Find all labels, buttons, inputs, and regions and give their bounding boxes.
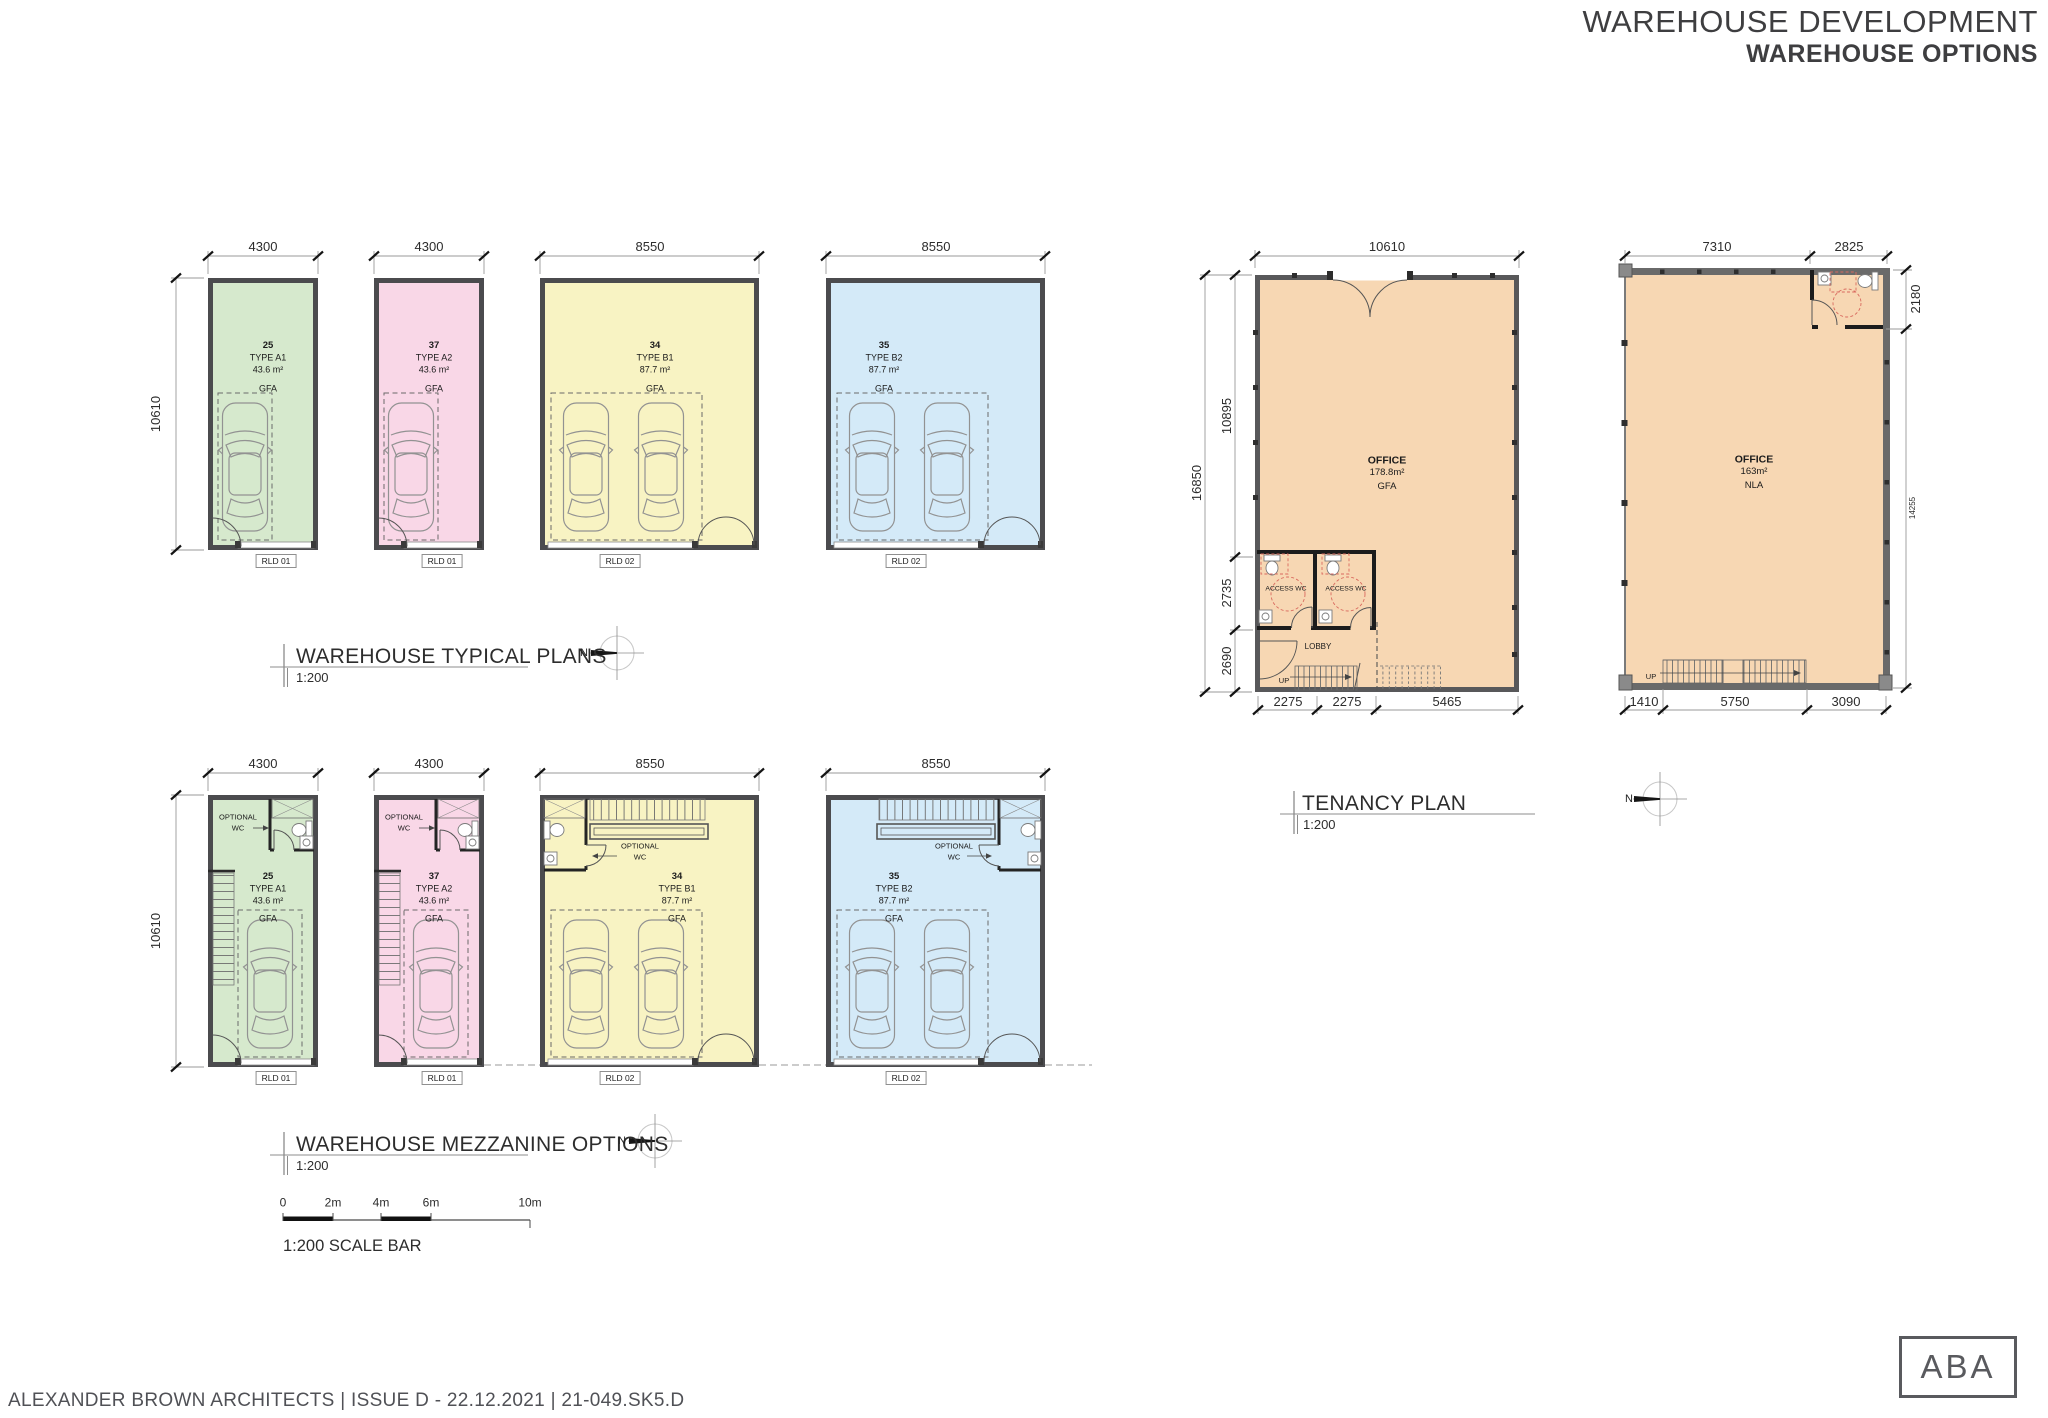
mezzanine-options-title: WAREHOUSE MEZZANINE OPTIONS bbox=[296, 1133, 669, 1157]
t1-seg1-dim: 10895 bbox=[1220, 398, 1234, 434]
t2-bottom-dim-3: 3090 bbox=[1832, 695, 1861, 709]
t1-up-label: UP bbox=[1279, 677, 1289, 685]
scalebar-label: 1:200 SCALE BAR bbox=[283, 1237, 422, 1256]
unit-b2-area-mezz: 87.7 m² bbox=[879, 896, 910, 905]
unit-a1-metric-mezz: GFA bbox=[259, 914, 277, 923]
t2-right-dim-2: 14255 bbox=[1909, 497, 1917, 519]
unit-a1-metric: GFA bbox=[259, 384, 277, 393]
unit-b2-type-mezz: TYPE B2 bbox=[875, 884, 912, 893]
t1-total-dim: 16850 bbox=[1190, 465, 1204, 501]
scalebar-0: 0 bbox=[280, 1197, 287, 1210]
rld-tag-a2-mezz: RLD 01 bbox=[422, 1071, 463, 1085]
unit-b1-area-mezz: 87.7 m² bbox=[662, 896, 693, 905]
unit-b1-typical-plan bbox=[543, 281, 758, 549]
unit-a2-typical-plan bbox=[377, 281, 483, 549]
dim-a1-height: 10610 bbox=[149, 396, 163, 432]
unit-b1-mezzanine-plan bbox=[543, 798, 758, 1066]
dim-b1-width-mezz: 8550 bbox=[636, 757, 665, 771]
optional-wc-b2: OPTIONAL WC bbox=[935, 842, 973, 863]
dim-a2-width-mezz: 4300 bbox=[415, 757, 444, 771]
unit-b1-area: 87.7 m² bbox=[640, 365, 671, 374]
rld-tag-b2-mezz: RLD 02 bbox=[886, 1071, 927, 1085]
unit-b1-number-mezz: 34 bbox=[672, 872, 683, 882]
unit-b2-typical-plan bbox=[829, 281, 1044, 549]
unit-b2-metric-mezz: GFA bbox=[885, 914, 903, 923]
unit-b2-metric: GFA bbox=[875, 384, 893, 393]
t1-bottom-dim-3: 5465 bbox=[1433, 695, 1462, 709]
north-arrow-tenancy bbox=[1633, 772, 1687, 826]
optional-wc-a1: OPTIONAL WC bbox=[219, 813, 257, 834]
unit-a1-mezzanine-plan bbox=[208, 798, 316, 1066]
dim-b1-width: 8550 bbox=[636, 240, 665, 254]
unit-a2-number: 37 bbox=[429, 341, 440, 351]
dim-a1-width: 4300 bbox=[249, 240, 278, 254]
unit-b2-mezzanine-plan bbox=[829, 798, 1044, 1066]
unit-a2-type-mezz: TYPE A2 bbox=[416, 884, 453, 893]
t1-access-wc-1: ACCESS WC bbox=[1265, 585, 1306, 592]
dim-a1-height-mezz: 10610 bbox=[149, 913, 163, 949]
unit-a2-metric-mezz: GFA bbox=[425, 914, 443, 923]
unit-a2-number-mezz: 37 bbox=[429, 872, 440, 882]
t2-right-dim-1: 2180 bbox=[1909, 285, 1923, 314]
unit-b2-number: 35 bbox=[879, 341, 890, 351]
unit-b1-number: 34 bbox=[650, 341, 661, 351]
footer-text: ALEXANDER BROWN ARCHITECTS | ISSUE D - 2… bbox=[8, 1390, 684, 1412]
t1-seg3-dim: 2690 bbox=[1220, 647, 1234, 676]
unit-a2-mezzanine-plan bbox=[374, 798, 482, 1066]
t2-top-dim-1: 7310 bbox=[1703, 240, 1732, 254]
t1-office-metric: GFA bbox=[1377, 482, 1396, 492]
unit-a2-metric: GFA bbox=[425, 384, 443, 393]
t1-office-area: 178.8m² bbox=[1370, 468, 1405, 478]
unit-a1-area: 43.6 m² bbox=[253, 365, 284, 374]
t2-office-metric: NLA bbox=[1745, 481, 1763, 491]
t1-bottom-dim-2: 2275 bbox=[1333, 695, 1362, 709]
scalebar-2m: 2m bbox=[325, 1197, 342, 1210]
t1-office-label: OFFICE bbox=[1368, 455, 1407, 466]
dim-b2-width: 8550 bbox=[922, 240, 951, 254]
unit-a1-type: TYPE A1 bbox=[250, 353, 287, 362]
north-label-typical: N bbox=[580, 648, 588, 660]
rld-tag-b2-typical: RLD 02 bbox=[886, 554, 927, 568]
unit-a2-type: TYPE A2 bbox=[416, 353, 453, 362]
drawing-sheet: WAREHOUSE DEVELOPMENT WAREHOUSE OPTIONS … bbox=[0, 0, 2048, 1418]
t1-lobby-label: LOBBY bbox=[1305, 643, 1332, 651]
north-label-mezzanine: N bbox=[618, 1136, 626, 1148]
unit-b1-type: TYPE B1 bbox=[636, 353, 673, 362]
project-title: WAREHOUSE DEVELOPMENT bbox=[1583, 4, 2038, 40]
mezzanine-options-scale: 1:200 bbox=[296, 1158, 329, 1173]
t1-access-wc-2: ACCESS WC bbox=[1325, 585, 1366, 592]
t2-bottom-dim-2: 5750 bbox=[1721, 695, 1750, 709]
rld-tag-a2-typical: RLD 01 bbox=[422, 554, 463, 568]
unit-a1-type-mezz: TYPE A1 bbox=[250, 884, 287, 893]
scalebar-10m: 10m bbox=[518, 1197, 541, 1210]
rld-tag-a1-mezz: RLD 01 bbox=[256, 1071, 297, 1085]
dim-a2-width: 4300 bbox=[415, 240, 444, 254]
typical-plans-title: WAREHOUSE TYPICAL PLANS bbox=[296, 645, 607, 669]
unit-b2-type: TYPE B2 bbox=[865, 353, 902, 362]
dim-a1-width-mezz: 4300 bbox=[249, 757, 278, 771]
t2-office-label: OFFICE bbox=[1735, 454, 1774, 465]
t1-bottom-dim-1: 2275 bbox=[1274, 695, 1303, 709]
unit-a1-area-mezz: 43.6 m² bbox=[253, 896, 284, 905]
unit-b1-metric: GFA bbox=[646, 384, 664, 393]
aba-logo: ABA bbox=[1899, 1336, 2017, 1398]
unit-b2-number-mezz: 35 bbox=[889, 872, 900, 882]
typical-plans-scale: 1:200 bbox=[296, 670, 329, 685]
t2-up-label: UP bbox=[1646, 673, 1656, 681]
scale-bar bbox=[283, 1213, 530, 1228]
optional-wc-b1: OPTIONAL WC bbox=[621, 842, 659, 863]
rld-tag-b1-mezz: RLD 02 bbox=[600, 1071, 641, 1085]
sheet-title-block: WAREHOUSE DEVELOPMENT WAREHOUSE OPTIONS bbox=[1583, 4, 2038, 69]
t1-seg2-dim: 2735 bbox=[1220, 579, 1234, 608]
t1-top-dim: 10610 bbox=[1369, 240, 1405, 254]
scalebar-4m: 4m bbox=[373, 1197, 390, 1210]
unit-b2-area: 87.7 m² bbox=[869, 365, 900, 374]
unit-a2-area-mezz: 43.6 m² bbox=[419, 896, 450, 905]
rld-tag-b1-typical: RLD 02 bbox=[600, 554, 641, 568]
t2-office-area: 163m² bbox=[1741, 467, 1768, 477]
t2-bottom-dim-1: 1410 bbox=[1630, 695, 1659, 709]
aba-logo-text: ABA bbox=[1920, 1348, 1995, 1386]
unit-a1-number: 25 bbox=[263, 341, 274, 351]
tenancy-plan-title: TENANCY PLAN bbox=[1302, 792, 1466, 816]
unit-a1-number-mezz: 25 bbox=[263, 872, 274, 882]
unit-a1-typical-plan bbox=[211, 281, 317, 549]
north-label-tenancy: N bbox=[1625, 794, 1633, 806]
unit-a2-area: 43.6 m² bbox=[419, 365, 450, 374]
tenancy-plan-scale: 1:200 bbox=[1303, 817, 1336, 832]
t2-top-dim-2: 2825 bbox=[1835, 240, 1864, 254]
unit-b1-metric-mezz: GFA bbox=[668, 914, 686, 923]
rld-tag-a1-typical: RLD 01 bbox=[256, 554, 297, 568]
dim-b2-width-mezz: 8550 bbox=[922, 757, 951, 771]
sheet-subtitle: WAREHOUSE OPTIONS bbox=[1583, 40, 2038, 69]
scalebar-6m: 6m bbox=[423, 1197, 440, 1210]
unit-b1-type-mezz: TYPE B1 bbox=[658, 884, 695, 893]
optional-wc-a2: OPTIONAL WC bbox=[385, 813, 423, 834]
